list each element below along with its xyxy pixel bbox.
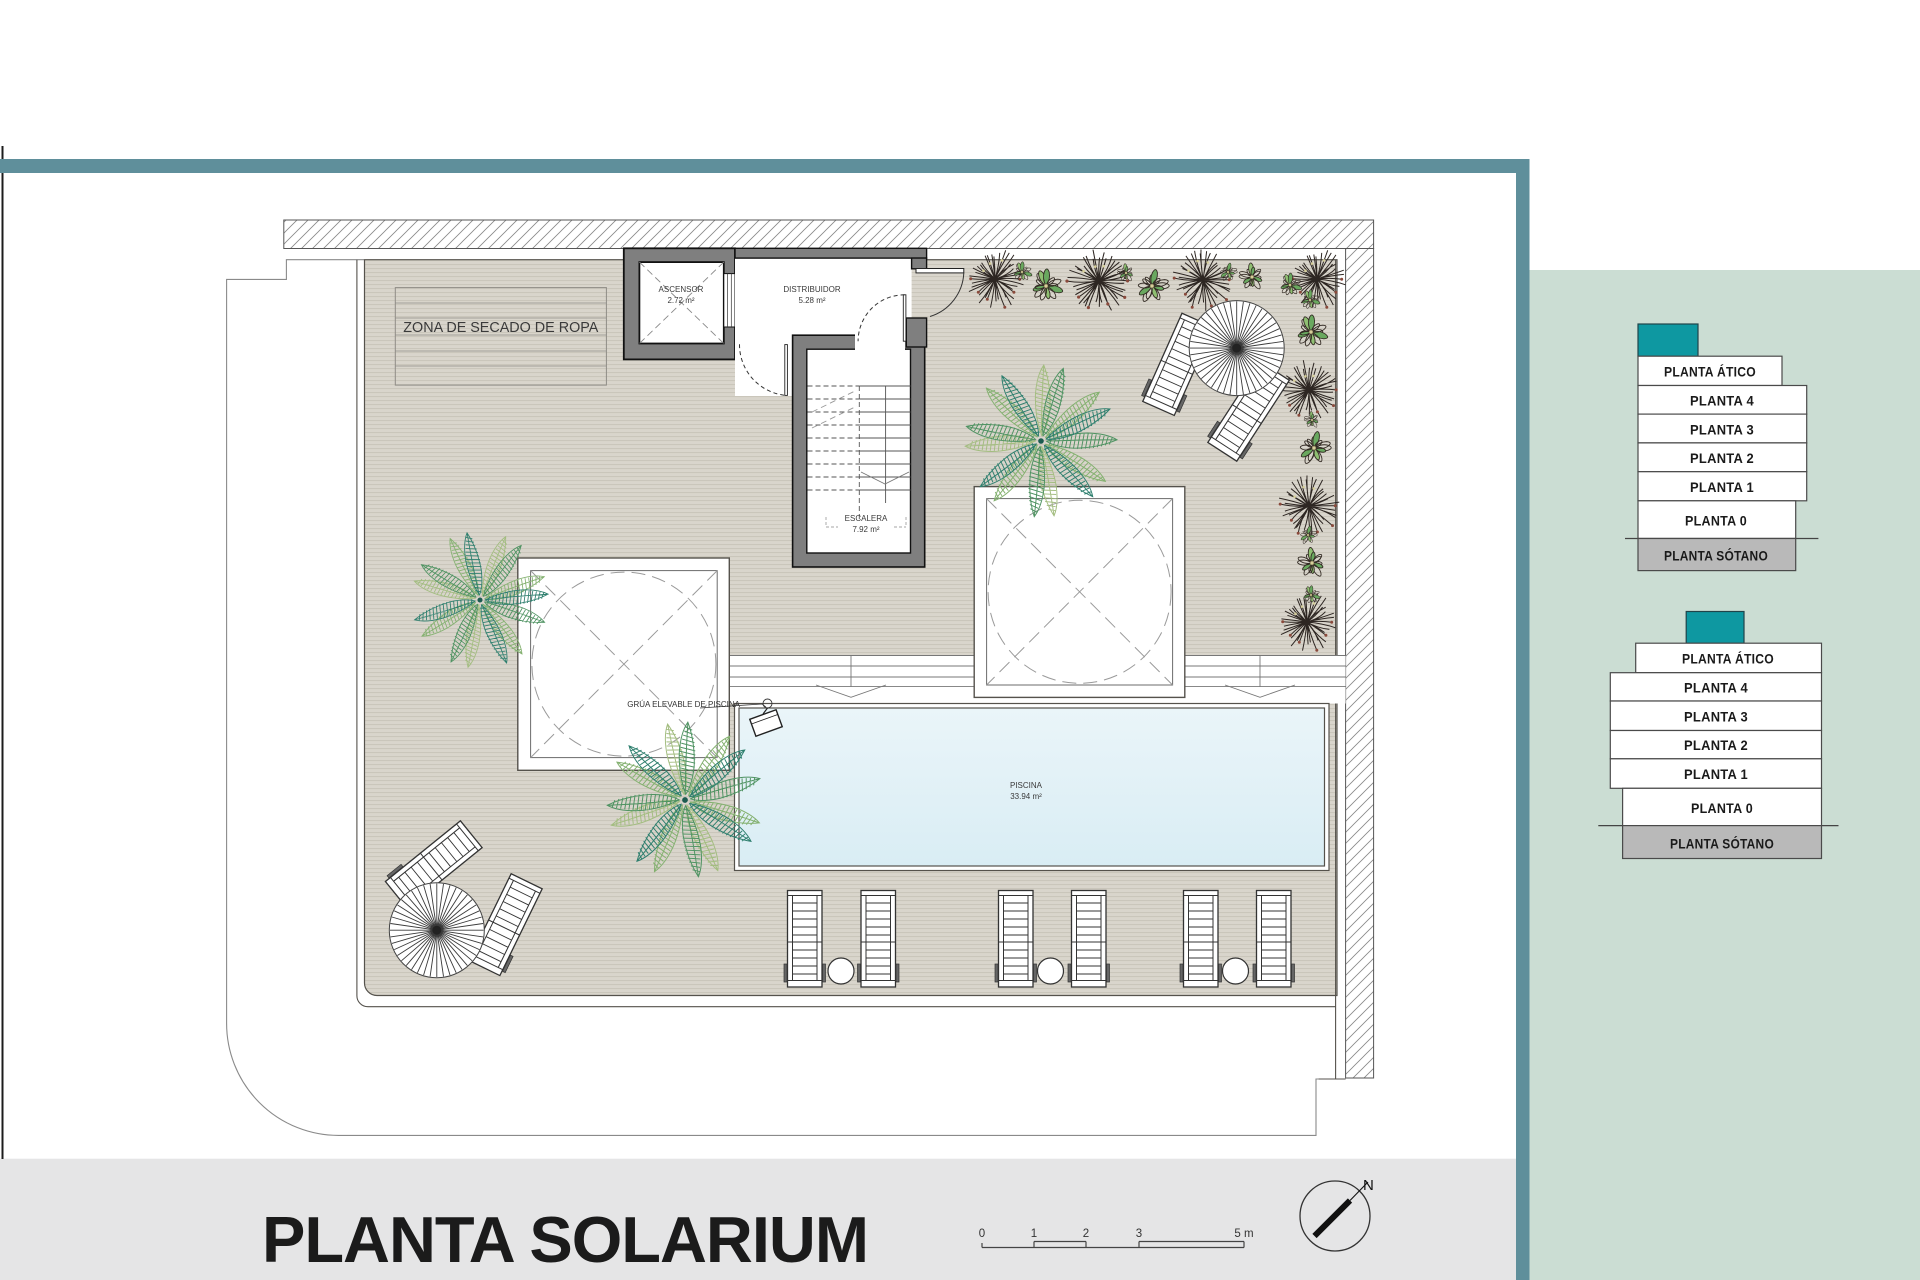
- svg-text:PLANTA 3: PLANTA 3: [1690, 422, 1754, 438]
- svg-text:PLANTA 3: PLANTA 3: [1684, 709, 1748, 725]
- svg-text:N: N: [1363, 1177, 1374, 1194]
- svg-text:PLANTA 1: PLANTA 1: [1684, 766, 1748, 782]
- svg-text:PLANTA 2: PLANTA 2: [1684, 737, 1748, 753]
- svg-text:PLANTA 0: PLANTA 0: [1691, 800, 1753, 816]
- svg-text:2.72 m²: 2.72 m²: [667, 296, 694, 305]
- svg-text:PLANTA SÓTANO: PLANTA SÓTANO: [1664, 547, 1768, 564]
- svg-text:5 m: 5 m: [1234, 1228, 1253, 1240]
- svg-text:ESCALERA: ESCALERA: [845, 514, 888, 523]
- svg-text:PLANTA 0: PLANTA 0: [1685, 513, 1747, 529]
- svg-text:0: 0: [979, 1228, 985, 1240]
- svg-text:ASCENSOR: ASCENSOR: [659, 285, 704, 294]
- svg-text:5.28 m²: 5.28 m²: [798, 296, 825, 305]
- svg-text:PLANTA SOLARIUM: PLANTA SOLARIUM: [262, 1203, 869, 1276]
- svg-text:PLANTA ÁTICO: PLANTA ÁTICO: [1682, 651, 1774, 667]
- svg-text:1: 1: [1031, 1228, 1037, 1240]
- svg-text:PLANTA 2: PLANTA 2: [1690, 450, 1754, 466]
- svg-text:PLANTA SÓTANO: PLANTA SÓTANO: [1670, 835, 1774, 852]
- svg-text:PISCINA: PISCINA: [1010, 781, 1043, 790]
- svg-text:33.94 m²: 33.94 m²: [1010, 792, 1042, 801]
- svg-text:DISTRIBUIDOR: DISTRIBUIDOR: [783, 285, 841, 294]
- svg-text:PLANTA ÁTICO: PLANTA ÁTICO: [1664, 364, 1756, 380]
- svg-text:ZONA DE SECADO DE ROPA: ZONA DE SECADO DE ROPA: [403, 320, 598, 336]
- svg-text:PLANTA 1: PLANTA 1: [1690, 479, 1754, 495]
- svg-text:3: 3: [1136, 1228, 1142, 1240]
- svg-text:GRÚA ELEVABLE DE PISCINA: GRÚA ELEVABLE DE PISCINA: [627, 700, 740, 709]
- svg-text:2: 2: [1083, 1228, 1089, 1240]
- svg-text:7.92 m²: 7.92 m²: [852, 525, 879, 534]
- svg-text:PLANTA 4: PLANTA 4: [1690, 393, 1754, 409]
- svg-text:PLANTA 4: PLANTA 4: [1684, 680, 1748, 696]
